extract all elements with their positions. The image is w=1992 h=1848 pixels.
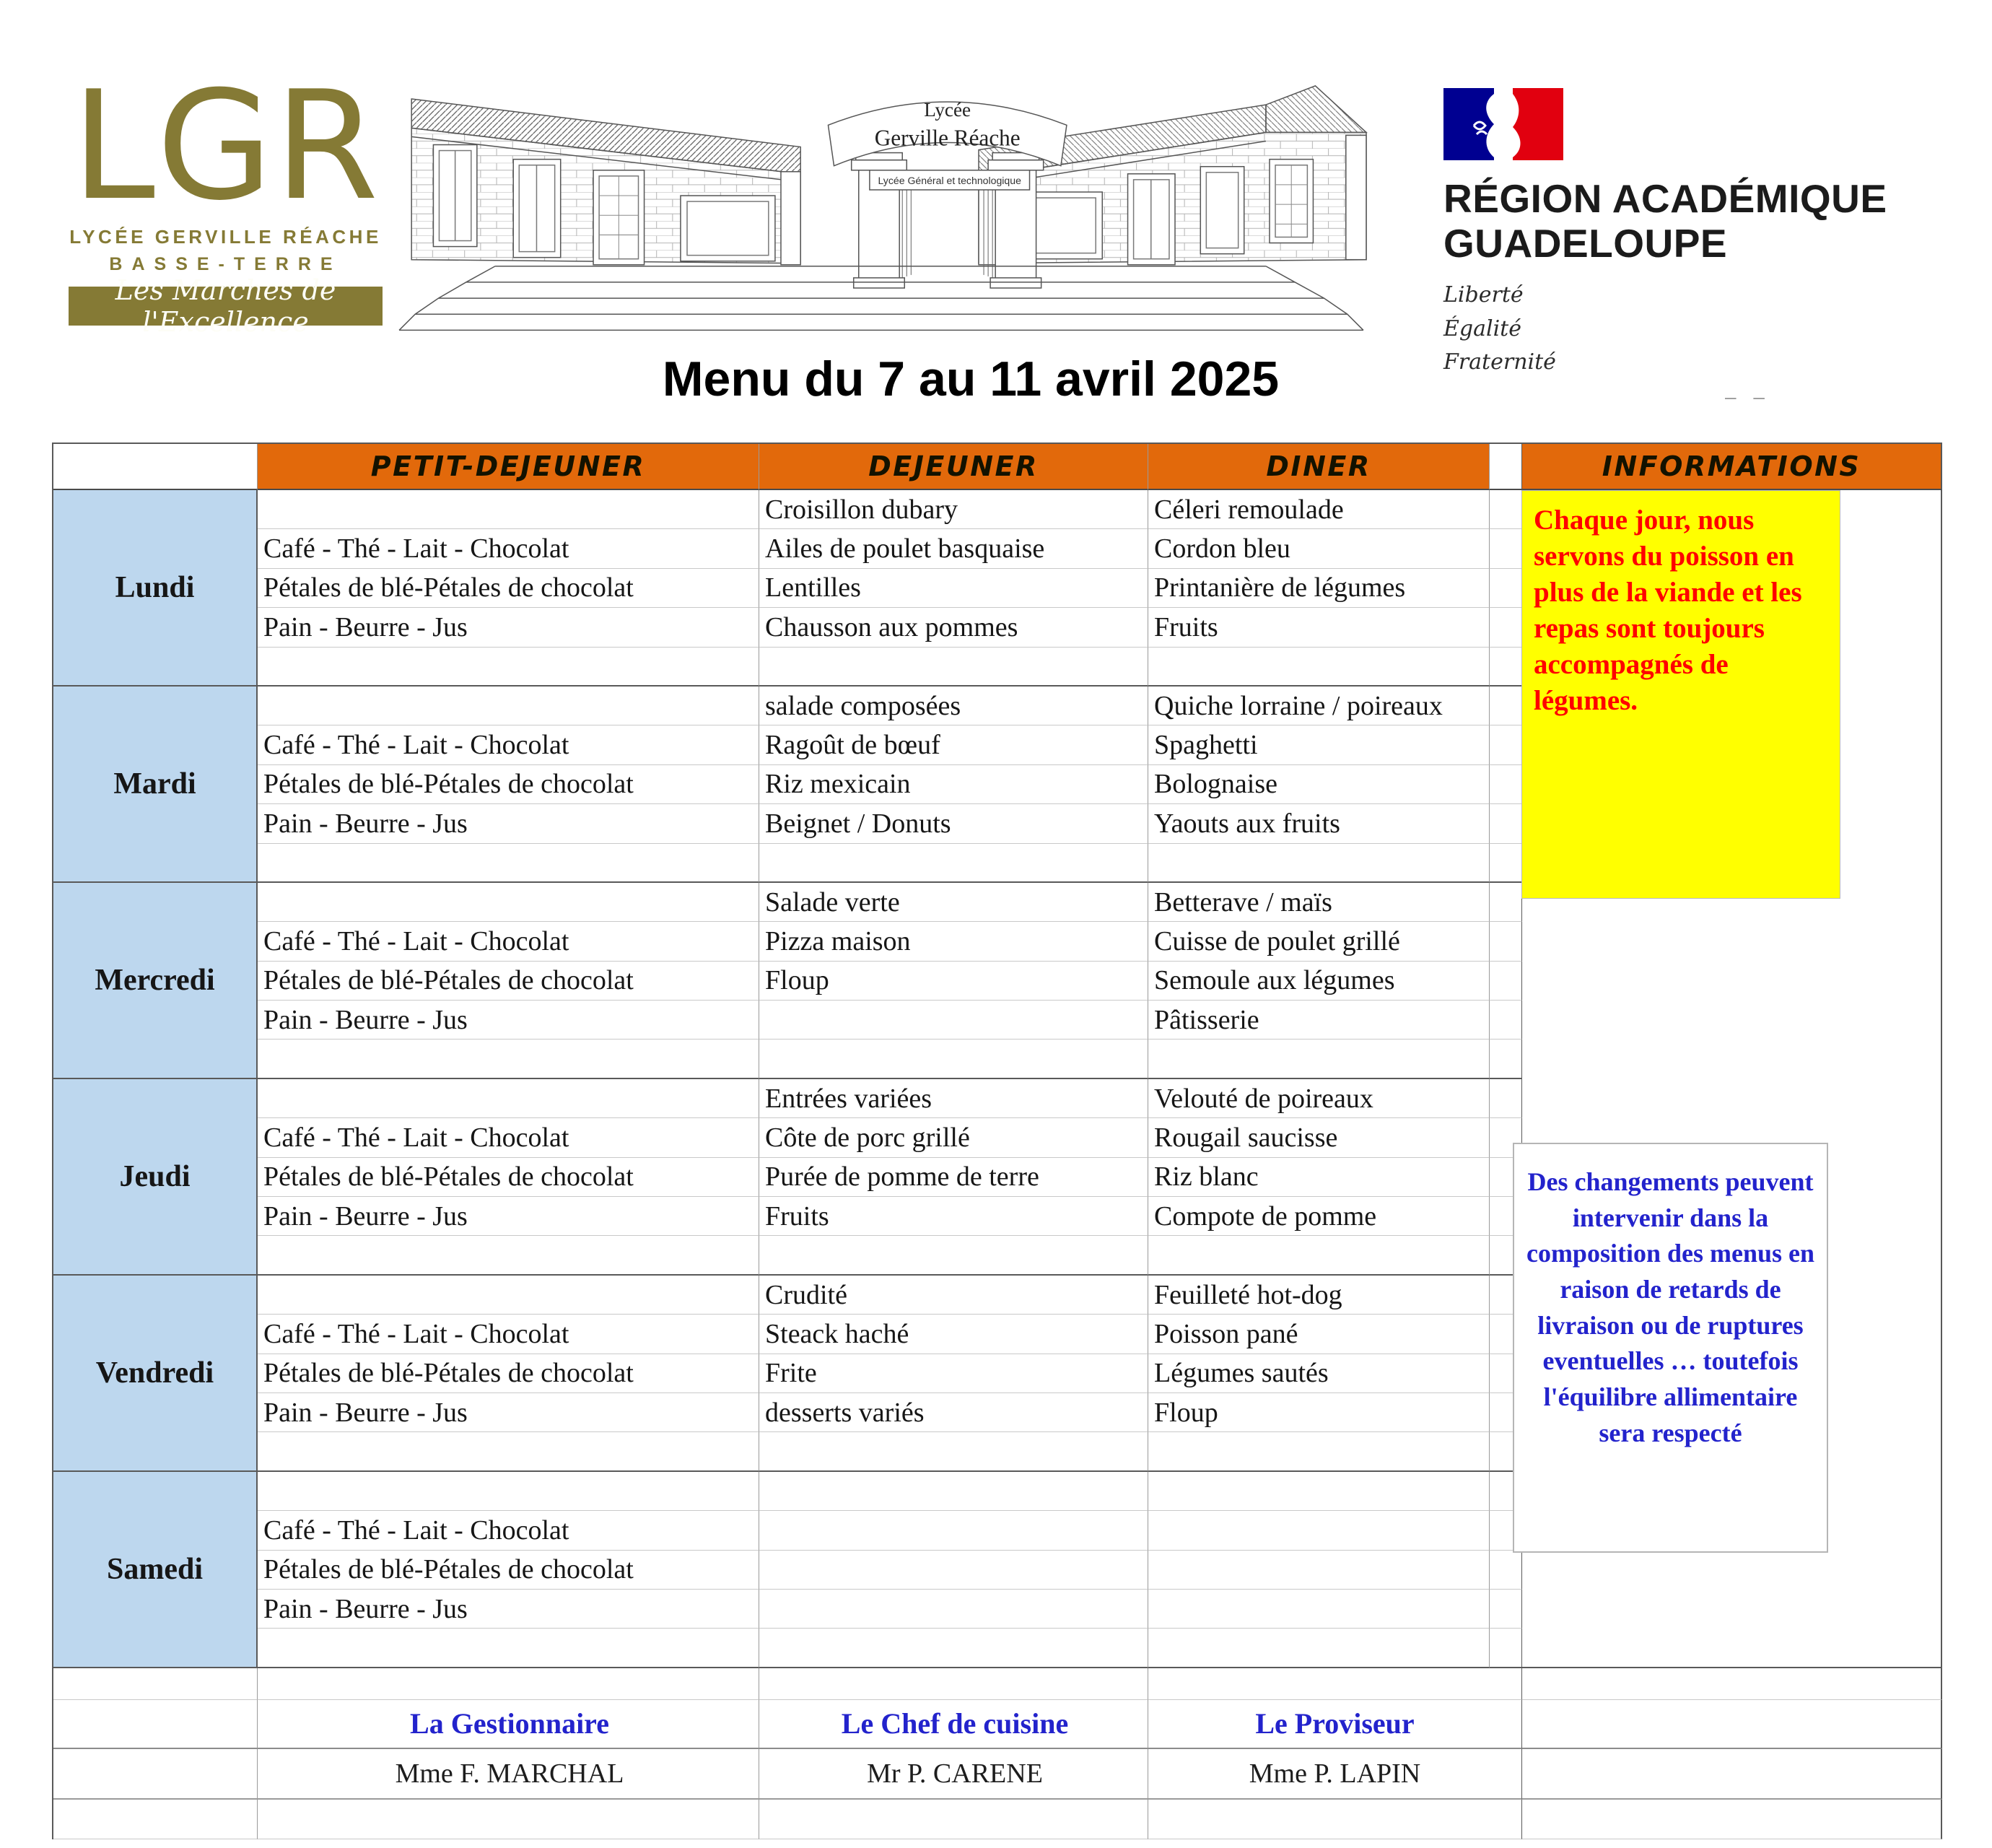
menu-cell: Pâtisserie xyxy=(1148,1001,1490,1039)
menu-cell: desserts variés xyxy=(759,1393,1148,1432)
menu-cell: Steack haché xyxy=(759,1315,1148,1354)
signature-name-carene: Mr P. CARENE xyxy=(759,1749,1148,1800)
day-label-jeudi: Jeudi xyxy=(53,1079,258,1276)
menu-cell: Riz blanc xyxy=(1148,1158,1490,1197)
menu-cell: Betterave / maïs xyxy=(1148,883,1490,922)
menu-cell: Printanière de légumes xyxy=(1148,569,1490,608)
menu-cell xyxy=(258,883,759,922)
menu-cell: Pain - Beurre - Jus xyxy=(258,1001,759,1039)
spacer-cell xyxy=(1490,1079,1522,1118)
school-building-drawing: Lycée Gerville Réache Lycée Général et t… xyxy=(393,45,1368,339)
menu-cell: Pétales de blé-Pétales de chocolat xyxy=(258,765,759,804)
footer-gap-cell xyxy=(1522,1668,1942,1700)
menu-cell xyxy=(759,844,1148,883)
menu-changes-note: Des changements peuvent intervenir dans … xyxy=(1513,1143,1828,1553)
lgr-school-name: LYCÉE GERVILLE RÉACHE xyxy=(69,226,383,248)
signature-name-lapin: Mme P. LAPIN xyxy=(1148,1749,1522,1800)
signature-row-cell xyxy=(1522,1700,1942,1749)
menu-document-page: LGR LYCÉE GERVILLE RÉACHE BASSE-TERRE Le… xyxy=(0,0,1992,1848)
header-diner: DINER xyxy=(1148,444,1490,490)
region-title-line2: GUADELOUPE xyxy=(1443,221,1978,266)
region-title-line1: RÉGION ACADÉMIQUE xyxy=(1443,176,1978,221)
footer-empty-cell xyxy=(1522,1800,1942,1839)
menu-cell: Pain - Beurre - Jus xyxy=(258,1393,759,1432)
menu-cell: Bolognaise xyxy=(1148,765,1490,804)
menu-cell: Légumes sautés xyxy=(1148,1354,1490,1393)
menu-cell: Rougail saucisse xyxy=(1148,1118,1490,1157)
menu-cell: Pétales de blé-Pétales de chocolat xyxy=(258,1551,759,1590)
spacer-cell xyxy=(1490,687,1522,725)
menu-cell xyxy=(1148,1590,1490,1629)
spacer-cell xyxy=(1490,608,1522,647)
menu-cell: Semoule aux légumes xyxy=(1148,962,1490,1001)
menu-cell: Pain - Beurre - Jus xyxy=(258,1590,759,1629)
menu-cell xyxy=(1148,1039,1490,1078)
footer-gap-cell xyxy=(759,1668,1148,1700)
menu-cell xyxy=(759,1236,1148,1275)
menu-cell xyxy=(759,648,1148,687)
daily-fish-note: Chaque jour, nous servons du poisson en … xyxy=(1521,490,1840,899)
menu-cell xyxy=(258,1276,759,1315)
menu-cell: Lentilles xyxy=(759,569,1148,608)
menu-cell: Poisson pané xyxy=(1148,1315,1490,1354)
spacer-cell xyxy=(1490,1001,1522,1039)
menu-cell: Compote de pomme xyxy=(1148,1197,1490,1236)
day-label-mardi: Mardi xyxy=(53,687,258,883)
menu-cell xyxy=(759,1629,1148,1668)
menu-cell: Riz mexicain xyxy=(759,765,1148,804)
footer-gap-cell xyxy=(1148,1668,1522,1700)
menu-cell: salade composées xyxy=(759,687,1148,725)
menu-cell: Croisillon dubary xyxy=(759,490,1148,529)
menu-cell: Café - Thé - Lait - Chocolat xyxy=(258,1511,759,1550)
spacer-cell xyxy=(1490,1551,1522,1590)
menu-cell xyxy=(1148,1629,1490,1668)
menu-cell: Salade verte xyxy=(759,883,1148,922)
menu-cell: Yaouts aux fruits xyxy=(1148,804,1490,843)
day-label-mercredi: Mercredi xyxy=(53,883,258,1079)
spacer-cell xyxy=(1490,529,1522,568)
gate-sign-line1: Lycée xyxy=(924,99,971,121)
menu-cell: Purée de pomme de terre xyxy=(759,1158,1148,1197)
menu-cell xyxy=(1148,1551,1490,1590)
signature-row-cell xyxy=(53,1700,258,1749)
menu-cell: Pétales de blé-Pétales de chocolat xyxy=(258,1158,759,1197)
menu-cell: Pétales de blé-Pétales de chocolat xyxy=(258,569,759,608)
gate-sign-subtitle: Lycée Général et technologique xyxy=(878,175,1021,186)
menu-cell: Feuilleté hot-dog xyxy=(1148,1276,1490,1315)
spacer-cell xyxy=(1490,725,1522,764)
spacer-cell xyxy=(1490,1629,1522,1668)
menu-cell: Café - Thé - Lait - Chocolat xyxy=(258,725,759,764)
lgr-city: BASSE-TERRE xyxy=(69,254,383,275)
menu-cell xyxy=(1148,1511,1490,1550)
day-label-vendredi: Vendredi xyxy=(53,1276,258,1472)
menu-cell: Cordon bleu xyxy=(1148,529,1490,568)
menu-cell: Cuisse de poulet grillé xyxy=(1148,922,1490,961)
region-academique-logo: RÉGION ACADÉMIQUE GUADELOUPE Liberté Éga… xyxy=(1443,88,1978,380)
devise-liberte: Liberté xyxy=(1443,279,1978,313)
devise-egalite: Égalité xyxy=(1443,313,1978,346)
menu-cell xyxy=(258,844,759,883)
header-dejeuner: DEJEUNER xyxy=(759,444,1148,490)
menu-cell xyxy=(258,1236,759,1275)
spacer-cell xyxy=(1490,804,1522,843)
footer-gap-cell xyxy=(53,1668,258,1700)
menu-cell: Café - Thé - Lait - Chocolat xyxy=(258,1315,759,1354)
menu-cell: Café - Thé - Lait - Chocolat xyxy=(258,922,759,961)
signature-name-cell xyxy=(1522,1749,1942,1800)
menu-cell: Spaghetti xyxy=(1148,725,1490,764)
menu-cell: Côte de porc grillé xyxy=(759,1118,1148,1157)
signature-role-chef: Le Chef de cuisine xyxy=(759,1700,1148,1749)
spacer-cell xyxy=(1490,1590,1522,1629)
menu-cell: Pain - Beurre - Jus xyxy=(258,1197,759,1236)
header-petit-dejeuner: PETIT-DEJEUNER xyxy=(258,444,759,490)
menu-cell: Céleri remoulade xyxy=(1148,490,1490,529)
menu-cell: Chausson aux pommes xyxy=(759,608,1148,647)
menu-cell xyxy=(258,1629,759,1668)
spacer-cell xyxy=(1490,922,1522,961)
menu-cell: Frite xyxy=(759,1354,1148,1393)
menu-cell xyxy=(759,1551,1148,1590)
table-corner-cell xyxy=(53,444,258,490)
region-title: RÉGION ACADÉMIQUE GUADELOUPE xyxy=(1443,176,1978,266)
marianne-flag-icon xyxy=(1443,88,1568,165)
menu-cell xyxy=(258,687,759,725)
menu-cell: Café - Thé - Lait - Chocolat xyxy=(258,529,759,568)
menu-cell xyxy=(1148,1236,1490,1275)
spacer-cell xyxy=(1490,765,1522,804)
menu-cell: Floup xyxy=(759,962,1148,1001)
menu-cell: Ragoût de bœuf xyxy=(759,725,1148,764)
menu-cell xyxy=(258,648,759,687)
spacer-cell xyxy=(1490,962,1522,1001)
footer-empty-cell xyxy=(1148,1800,1522,1839)
signature-role-proviseur: Le Proviseur xyxy=(1148,1700,1522,1749)
signature-role-gestionnaire: La Gestionnaire xyxy=(258,1700,759,1749)
menu-cell: Pain - Beurre - Jus xyxy=(258,804,759,843)
menu-cell xyxy=(1148,1472,1490,1511)
footer-gap-cell xyxy=(258,1668,759,1700)
signature-name-cell xyxy=(53,1749,258,1800)
menu-cell: Pizza maison xyxy=(759,922,1148,961)
menu-cell xyxy=(759,1511,1148,1550)
menu-cell xyxy=(759,1039,1148,1078)
spacer-cell xyxy=(1490,569,1522,608)
footer-empty-cell xyxy=(759,1800,1148,1839)
spacer-cell xyxy=(1490,1039,1522,1078)
day-label-samedi: Samedi xyxy=(53,1472,258,1668)
menu-cell xyxy=(759,1590,1148,1629)
menu-cell: Pétales de blé-Pétales de chocolat xyxy=(258,962,759,1001)
header-spacer-cell xyxy=(1490,444,1522,490)
menu-cell: Floup xyxy=(1148,1393,1490,1432)
menu-cell xyxy=(258,1039,759,1078)
menu-cell xyxy=(759,1472,1148,1511)
menu-cell: Ailes de poulet basquaise xyxy=(759,529,1148,568)
menu-cell xyxy=(759,1432,1148,1471)
menu-cell: Pétales de blé-Pétales de chocolat xyxy=(258,1354,759,1393)
menu-cell xyxy=(258,1472,759,1511)
menu-cell: Entrées variées xyxy=(759,1079,1148,1118)
menu-cell: Beignet / Donuts xyxy=(759,804,1148,843)
spacer-cell xyxy=(1490,648,1522,687)
menu-cell xyxy=(1148,1432,1490,1471)
day-label-lundi: Lundi xyxy=(53,490,258,687)
menu-cell xyxy=(258,1432,759,1471)
menu-cell: Crudité xyxy=(759,1276,1148,1315)
footer-empty-cell xyxy=(53,1800,258,1839)
lgr-acronym: LGR xyxy=(71,76,383,219)
signature-name-marchal: Mme F. MARCHAL xyxy=(258,1749,759,1800)
spacer-cell xyxy=(1490,844,1522,883)
menu-cell xyxy=(258,490,759,529)
menu-cell xyxy=(1148,844,1490,883)
menu-cell: Quiche lorraine / poireaux xyxy=(1148,687,1490,725)
footer-empty-cell xyxy=(258,1800,759,1839)
menu-cell: Fruits xyxy=(759,1197,1148,1236)
spacer-cell xyxy=(1490,490,1522,529)
header-informations: INFORMATIONS xyxy=(1522,444,1942,490)
menu-cell: Pain - Beurre - Jus xyxy=(258,608,759,647)
gate-sign-line2: Gerville Réache xyxy=(875,126,1021,151)
menu-cell xyxy=(258,1079,759,1118)
spacer-cell xyxy=(1490,883,1522,922)
lgr-motto-banner: Les Marches de l'Excellence xyxy=(69,287,383,326)
lgr-logo: LGR LYCÉE GERVILLE RÉACHE BASSE-TERRE Le… xyxy=(69,76,383,326)
menu-cell xyxy=(759,1001,1148,1039)
page-title: Menu du 7 au 11 avril 2025 xyxy=(0,351,1941,407)
menu-cell xyxy=(1148,648,1490,687)
menu-cell: Fruits xyxy=(1148,608,1490,647)
menu-cell: Velouté de poireaux xyxy=(1148,1079,1490,1118)
menu-cell: Café - Thé - Lait - Chocolat xyxy=(258,1118,759,1157)
